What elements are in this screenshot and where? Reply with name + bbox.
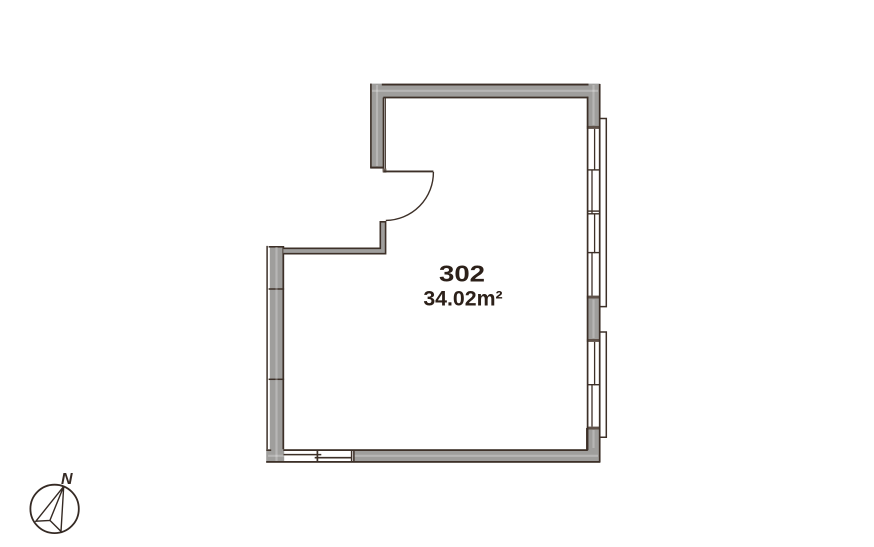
svg-text:302: 302 [439,261,485,287]
svg-text:34.02m²: 34.02m² [423,287,502,311]
svg-text:N: N [61,471,73,488]
